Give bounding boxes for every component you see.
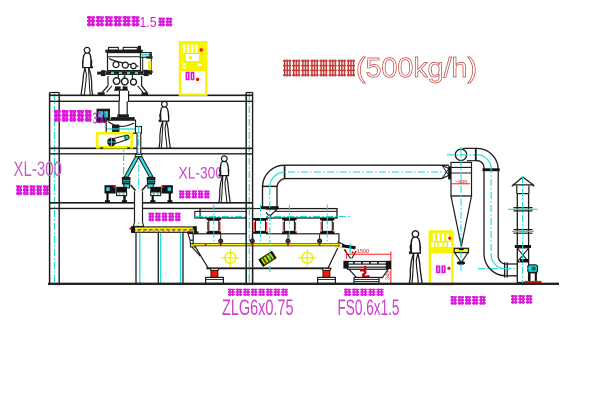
- svg-text:1500: 1500: [357, 249, 369, 255]
- svg-text:(500kg/h): (500kg/h): [356, 52, 477, 83]
- svg-text:FS0.6x1.5: FS0.6x1.5: [338, 295, 400, 320]
- svg-text:XL-300: XL-300: [14, 158, 63, 181]
- svg-text:350: 350: [93, 111, 107, 128]
- svg-text:XL-300: XL-300: [179, 164, 224, 183]
- svg-text:ZLG6x0.75: ZLG6x0.75: [222, 295, 294, 320]
- svg-text:1.5: 1.5: [140, 14, 157, 31]
